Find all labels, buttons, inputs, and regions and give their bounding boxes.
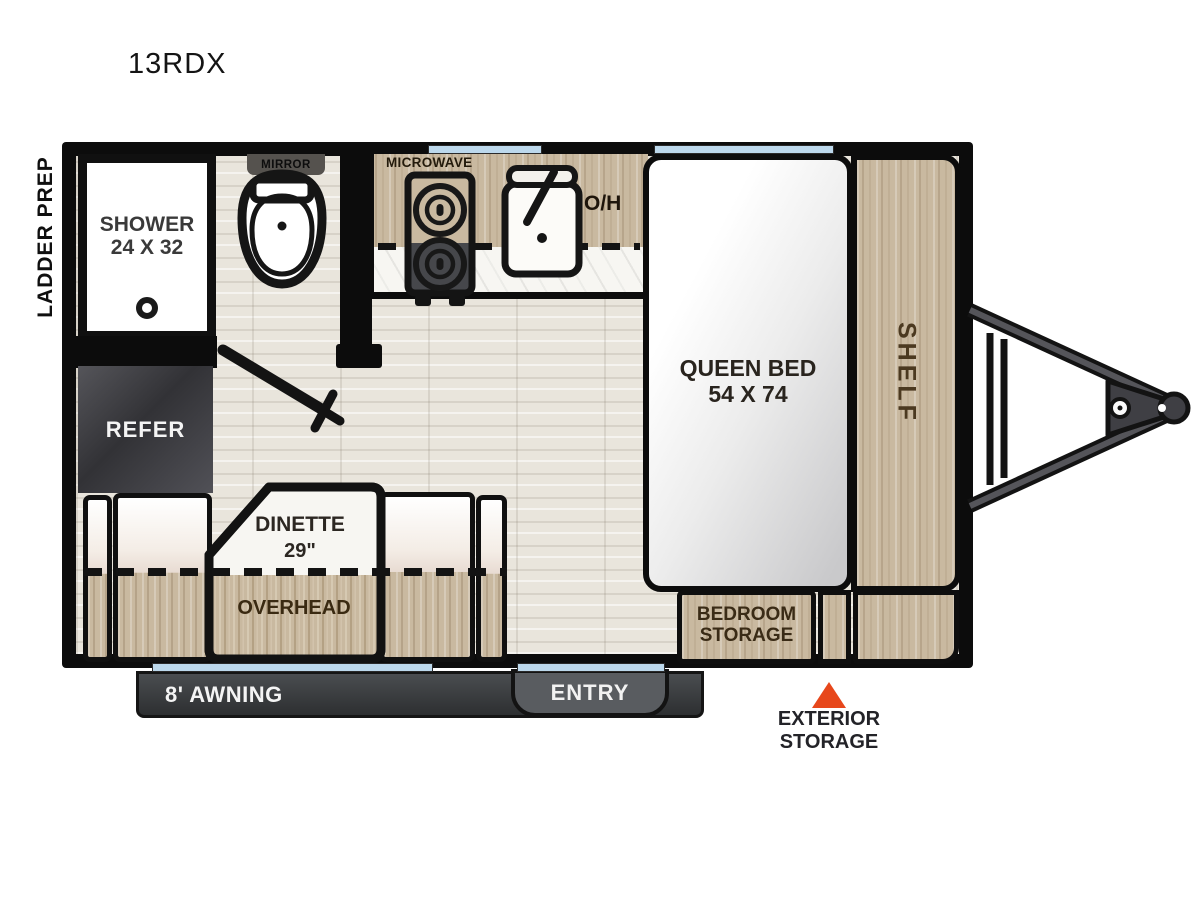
cooktop-icon (402, 169, 478, 311)
exterior-storage-label-line2: STORAGE (756, 731, 902, 754)
queen-bed: QUEEN BED 54 X 74 (643, 154, 853, 592)
entry-door-step: ENTRY (511, 669, 669, 717)
door-swing-icon (213, 342, 358, 437)
storage-panel-small (818, 590, 851, 664)
sink-icon (497, 164, 587, 282)
exterior-storage-label-line1: EXTERIOR (756, 708, 902, 731)
trailer-hitch-icon (966, 293, 1196, 523)
refrigerator: REFER (78, 366, 213, 493)
bedside-shelf: SHELF (851, 154, 961, 592)
window-bottom-entry (517, 663, 665, 672)
bedroom-storage-label-line1: BEDROOM (697, 604, 796, 625)
microwave-label: MICROWAVE (386, 155, 472, 170)
bedroom-storage-label-line2: STORAGE (700, 625, 794, 646)
queen-bed-label-line2: 54 X 74 (708, 381, 787, 407)
window-top-kitchen (428, 145, 542, 154)
dinette-bench-left (113, 493, 212, 662)
shower-stall: SHOWER 24 X 32 (78, 154, 216, 340)
shower-drain-icon (136, 297, 158, 319)
exterior-storage-label: EXTERIOR STORAGE (756, 708, 902, 754)
dinette-overhead-dash-line (84, 568, 507, 576)
bathroom-lower-wall (69, 336, 217, 368)
kitchen-left-wall-edge (370, 154, 374, 299)
bedroom-storage-cabinet: BEDROOM STORAGE (677, 590, 816, 664)
bathroom-wall (340, 154, 372, 354)
overhead-label: OVERHEAD (228, 597, 360, 620)
awning-label: 8' AWNING (165, 682, 283, 708)
dinette-bench-right (379, 492, 475, 662)
toilet-icon (231, 168, 333, 290)
shower-label-line1: SHOWER (100, 213, 195, 236)
shelf-label: SHELF (892, 322, 921, 424)
overhead-cabinet-label: O/H (584, 192, 621, 216)
entry-label: ENTRY (551, 680, 630, 706)
dinette-label-line1: DINETTE (237, 513, 363, 537)
shower-label-line2: 24 X 32 (111, 236, 183, 259)
dinette-cushion-right-narrow (476, 495, 507, 662)
dinette-label-line2: 29" (237, 540, 363, 563)
queen-bed-label-line1: QUEEN BED (680, 355, 817, 381)
window-bottom-dinette (152, 663, 433, 672)
exterior-storage-marker-icon (812, 682, 846, 708)
window-top-bed (654, 145, 834, 154)
ladder-prep-label: LADDER PREP (34, 156, 58, 318)
floorplan-canvas: 13RDX LADDER PREP SHOWER 24 X 32 REFER M… (0, 0, 1200, 900)
refer-label: REFER (106, 417, 186, 443)
dinette-cushion-left-narrow (83, 495, 112, 662)
storage-panel-corner (853, 590, 959, 664)
page-title: 13RDX (128, 48, 227, 81)
